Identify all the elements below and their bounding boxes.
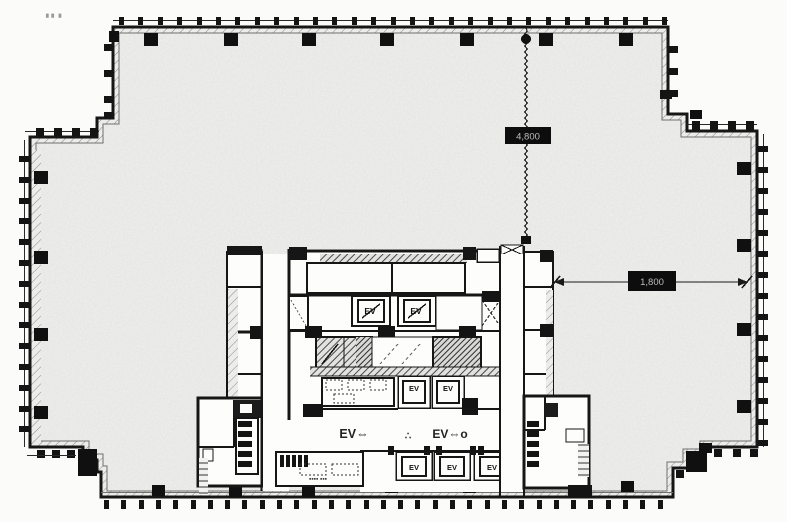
svg-text:EV: EV [443,384,453,393]
svg-text:∴: ∴ [405,431,411,442]
svg-text:EV⇔: EV⇔ [339,427,368,441]
svg-text:EV: EV [409,384,419,393]
svg-text:EV⇔ᴏ: EV⇔ᴏ [432,427,467,441]
svg-text:EV: EV [410,306,422,316]
svg-text:▪▪▪▪ ▪▪▪: ▪▪▪▪ ▪▪▪ [309,476,327,483]
svg-text:4,800: 4,800 [516,132,540,143]
svg-text:EV: EV [447,463,457,472]
svg-text:EV: EV [364,306,376,316]
svg-text:▖▖ ▖: ▖▖ ▖ [45,11,64,18]
svg-text:EV: EV [409,463,419,472]
svg-text:EV: EV [487,463,497,472]
svg-text:1,800: 1,800 [640,277,664,288]
